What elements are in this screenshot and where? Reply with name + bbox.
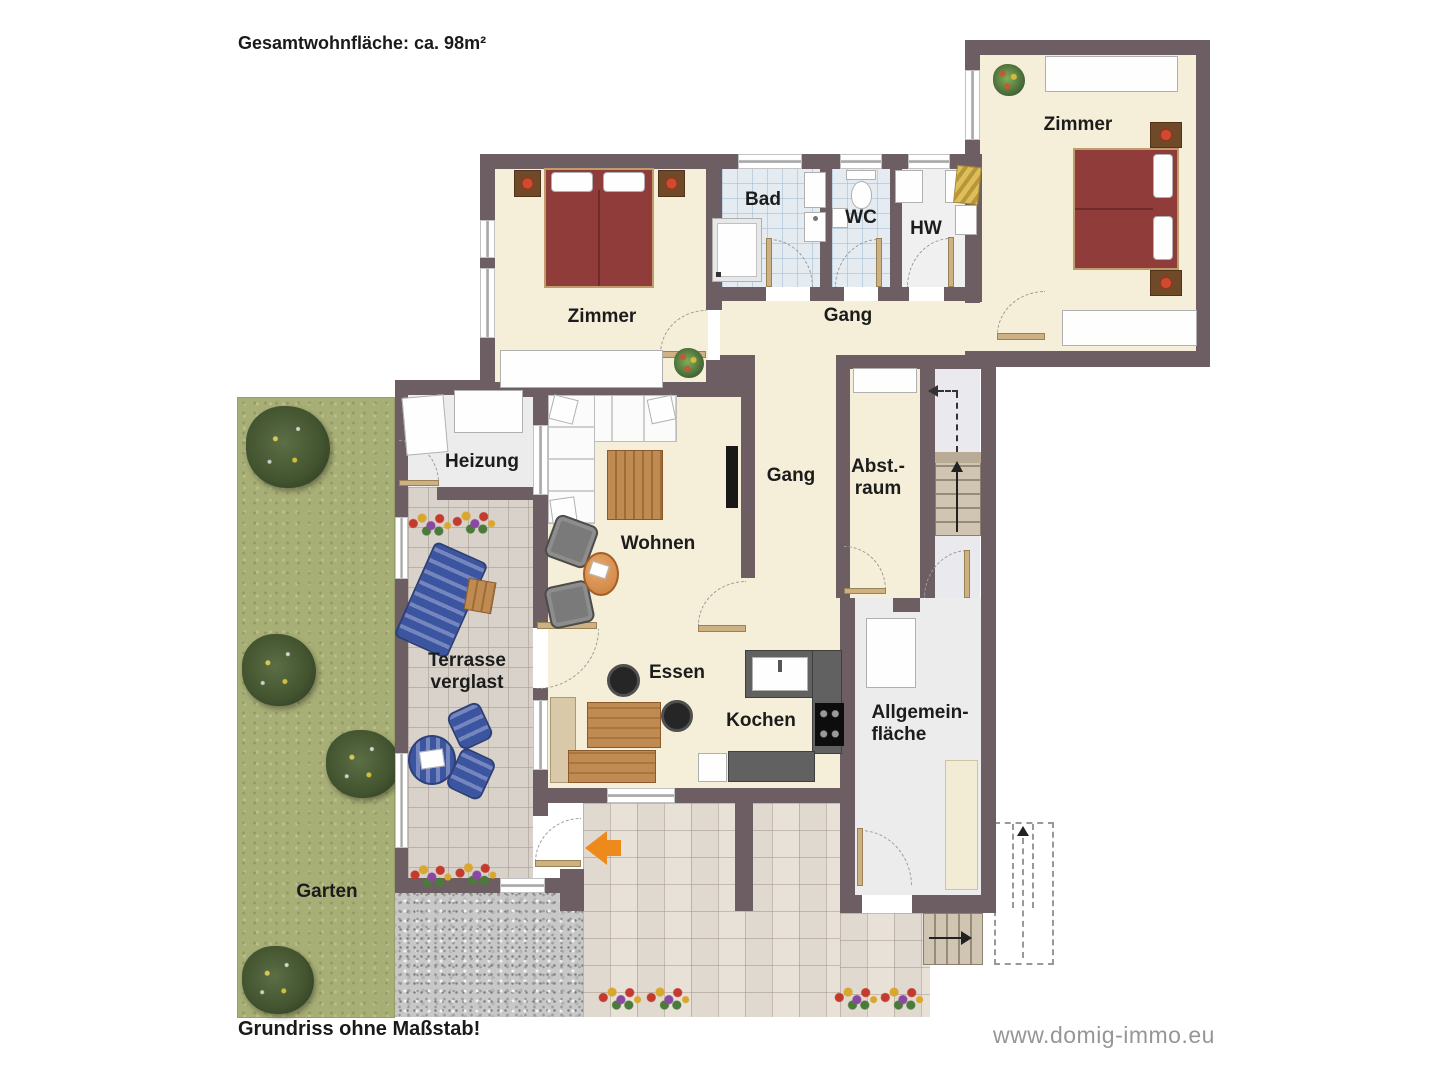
room-label-essen: Essen [649,662,705,684]
stairs-up-arrow-icon [956,470,958,532]
wall-segment [741,382,755,578]
room-label-terrasse: Terrasse verglast [428,650,506,694]
window [840,154,882,169]
room-label-abstellraum: Abst.- raum [851,456,905,500]
toilet-icon [851,181,872,209]
room-label-heizung: Heizung [445,451,519,473]
pillow-icon [1153,216,1173,260]
wall-segment [893,598,920,612]
room-label-bad: Bad [745,189,781,211]
room-label-allgemein-line1: Allgemein- [871,702,968,724]
window [533,425,548,495]
room-label-hw: HW [910,218,942,240]
page-title: Gesamtwohnfläche: ca. 98m² [238,33,486,54]
wall-segment [965,40,980,72]
kitchen-counter [728,751,815,782]
room-label-zimmer-left: Zimmer [568,306,637,328]
stairs-dashed-path [938,390,958,392]
flower-box-icon [455,860,497,886]
room-label-gang-lower: Gang [767,465,816,487]
upper-stairs-dashed-step [1012,824,1014,908]
zimmer-right-doorway [965,301,980,350]
door-leaf [948,237,954,287]
wall-segment [706,287,766,301]
dining-table-icon [587,702,661,748]
room-label-zimmer-right: Zimmer [1044,114,1113,136]
boiler-icon [454,390,523,433]
scale-note: Grundriss ohne Maßstab! [238,1018,480,1041]
window [395,753,408,848]
wall-segment [480,258,495,268]
wall-segment [533,688,548,700]
garden-area [237,397,395,1018]
nightstand-icon [658,170,685,197]
wall-segment [981,355,996,913]
storage-strip [945,760,978,890]
room-label-allgemeinflaeche: Allgemein- fläche [871,702,968,746]
wardrobe-icon [1045,56,1178,92]
flower-box-icon [408,510,452,537]
gravel-area [395,891,583,1017]
wall-segment [735,803,753,911]
wall-segment [802,154,840,169]
wall-segment [480,154,495,220]
window [395,517,408,579]
door-leaf [857,828,863,886]
flower-box-icon [410,862,452,888]
entrance-arrow-icon [585,831,607,865]
door-leaf [997,333,1045,340]
bed-divider [598,190,600,286]
floorplan-canvas: Zimmer Zimmer Bad WC HW Gang Gang Heizun… [0,0,1436,1077]
window [738,154,802,169]
door-leaf [766,238,772,287]
wall-segment [395,848,408,880]
exterior-stairs-icon [923,913,983,965]
wall-segment [533,495,548,628]
bush-icon [246,406,330,488]
stairs-dashed-path [956,392,958,452]
wall-segment [836,355,982,369]
window [480,220,495,258]
shelf-icon [866,618,916,688]
flower-box-icon [880,984,924,1011]
bush-icon [242,634,316,706]
room-label-terrasse-line1: Terrasse [428,650,506,672]
side-table-icon [463,578,496,614]
boiler-icon [402,394,449,455]
wall-segment [395,487,408,517]
flower-box-icon [452,508,496,535]
stairs-exit-arrow-icon [929,937,963,939]
bush-icon [242,946,314,1014]
door-swing-arc [535,818,581,862]
flower-box-icon [834,984,878,1011]
door-leaf [844,588,886,594]
wall-segment [533,382,548,425]
bush-icon [326,730,400,798]
wardrobe-icon [500,350,663,388]
pillow-icon [1153,154,1173,198]
wall-segment [965,351,1210,367]
pillow-icon [551,172,593,192]
wall-segment [965,40,1210,55]
towels-icon [953,165,982,205]
wall-segment [840,598,855,895]
pillow-icon [603,172,645,192]
bath-cabinet-icon [804,172,826,208]
wall-segment [878,287,909,301]
wall-segment [480,154,738,169]
stairs-up-arrow-icon [951,461,963,472]
room-label-wc: WC [845,207,877,229]
door-leaf [535,860,581,867]
room-label-garten: Garten [296,881,357,903]
door-leaf [399,480,439,486]
flower-box-icon [646,984,690,1011]
toilet-tank-icon [846,170,876,180]
wall-segment [545,878,583,893]
upper-stairs-dashed-path [1022,838,1024,958]
wall-segment [533,770,548,816]
upper-stairs-dashed-outline [994,822,1054,965]
window [533,700,548,770]
wall-segment [882,154,908,169]
wall-segment [810,287,844,301]
door-leaf [964,550,970,598]
wall-segment [912,895,996,913]
room-label-terrasse-line2: verglast [428,672,506,694]
wardrobe-icon [1062,310,1197,346]
plant-icon [674,348,704,378]
door-leaf [698,625,746,632]
terrace-glass-door [607,788,675,803]
wall-segment [437,487,533,500]
chair-icon [607,664,640,697]
nightstand-icon [1150,270,1182,296]
wall-segment [944,287,966,301]
rug-icon [607,450,663,520]
drain-dot [716,272,721,277]
entrance-arrow-icon [605,840,621,856]
door-leaf [876,238,882,287]
window [965,70,980,140]
window [908,154,950,169]
wall-segment [675,788,840,803]
appliance-icon [955,205,977,235]
room-label-abstellraum-line2: raum [851,478,905,500]
website-watermark: www.domig-immo.eu [993,1022,1215,1049]
room-label-gang-upper: Gang [824,305,873,327]
plant-icon [993,64,1025,96]
stairs-up-arrow-icon [1017,826,1029,836]
room-label-kochen: Kochen [726,710,796,732]
upper-stairs-dashed-step [1032,824,1034,908]
cushion-icon [647,395,677,425]
window [500,878,545,893]
cooktop-icon [815,703,844,746]
flower-box-icon [598,984,642,1011]
stairs-exit-arrow-icon [961,931,972,945]
nightstand-icon [1150,122,1182,148]
tray-icon [419,748,445,769]
bench-icon [568,750,656,783]
bed-divider [1075,208,1153,210]
wall-segment [840,895,862,913]
nightstand-icon [514,170,541,197]
chair-icon [661,700,693,732]
room-label-allgemein-line2: fläche [871,724,968,746]
room-label-wohnen: Wohnen [621,533,696,555]
stairs-dashed-arrow-icon [928,385,938,397]
shelf-icon [853,368,917,393]
window [480,268,495,338]
room-label-abstellraum-line1: Abst.- [851,456,905,478]
dishwasher-icon [698,753,727,782]
wall-segment [1196,40,1210,367]
faucet-dot [813,216,818,221]
faucet-icon [778,660,782,672]
appliance-icon [895,170,923,203]
tv-icon [726,446,738,508]
